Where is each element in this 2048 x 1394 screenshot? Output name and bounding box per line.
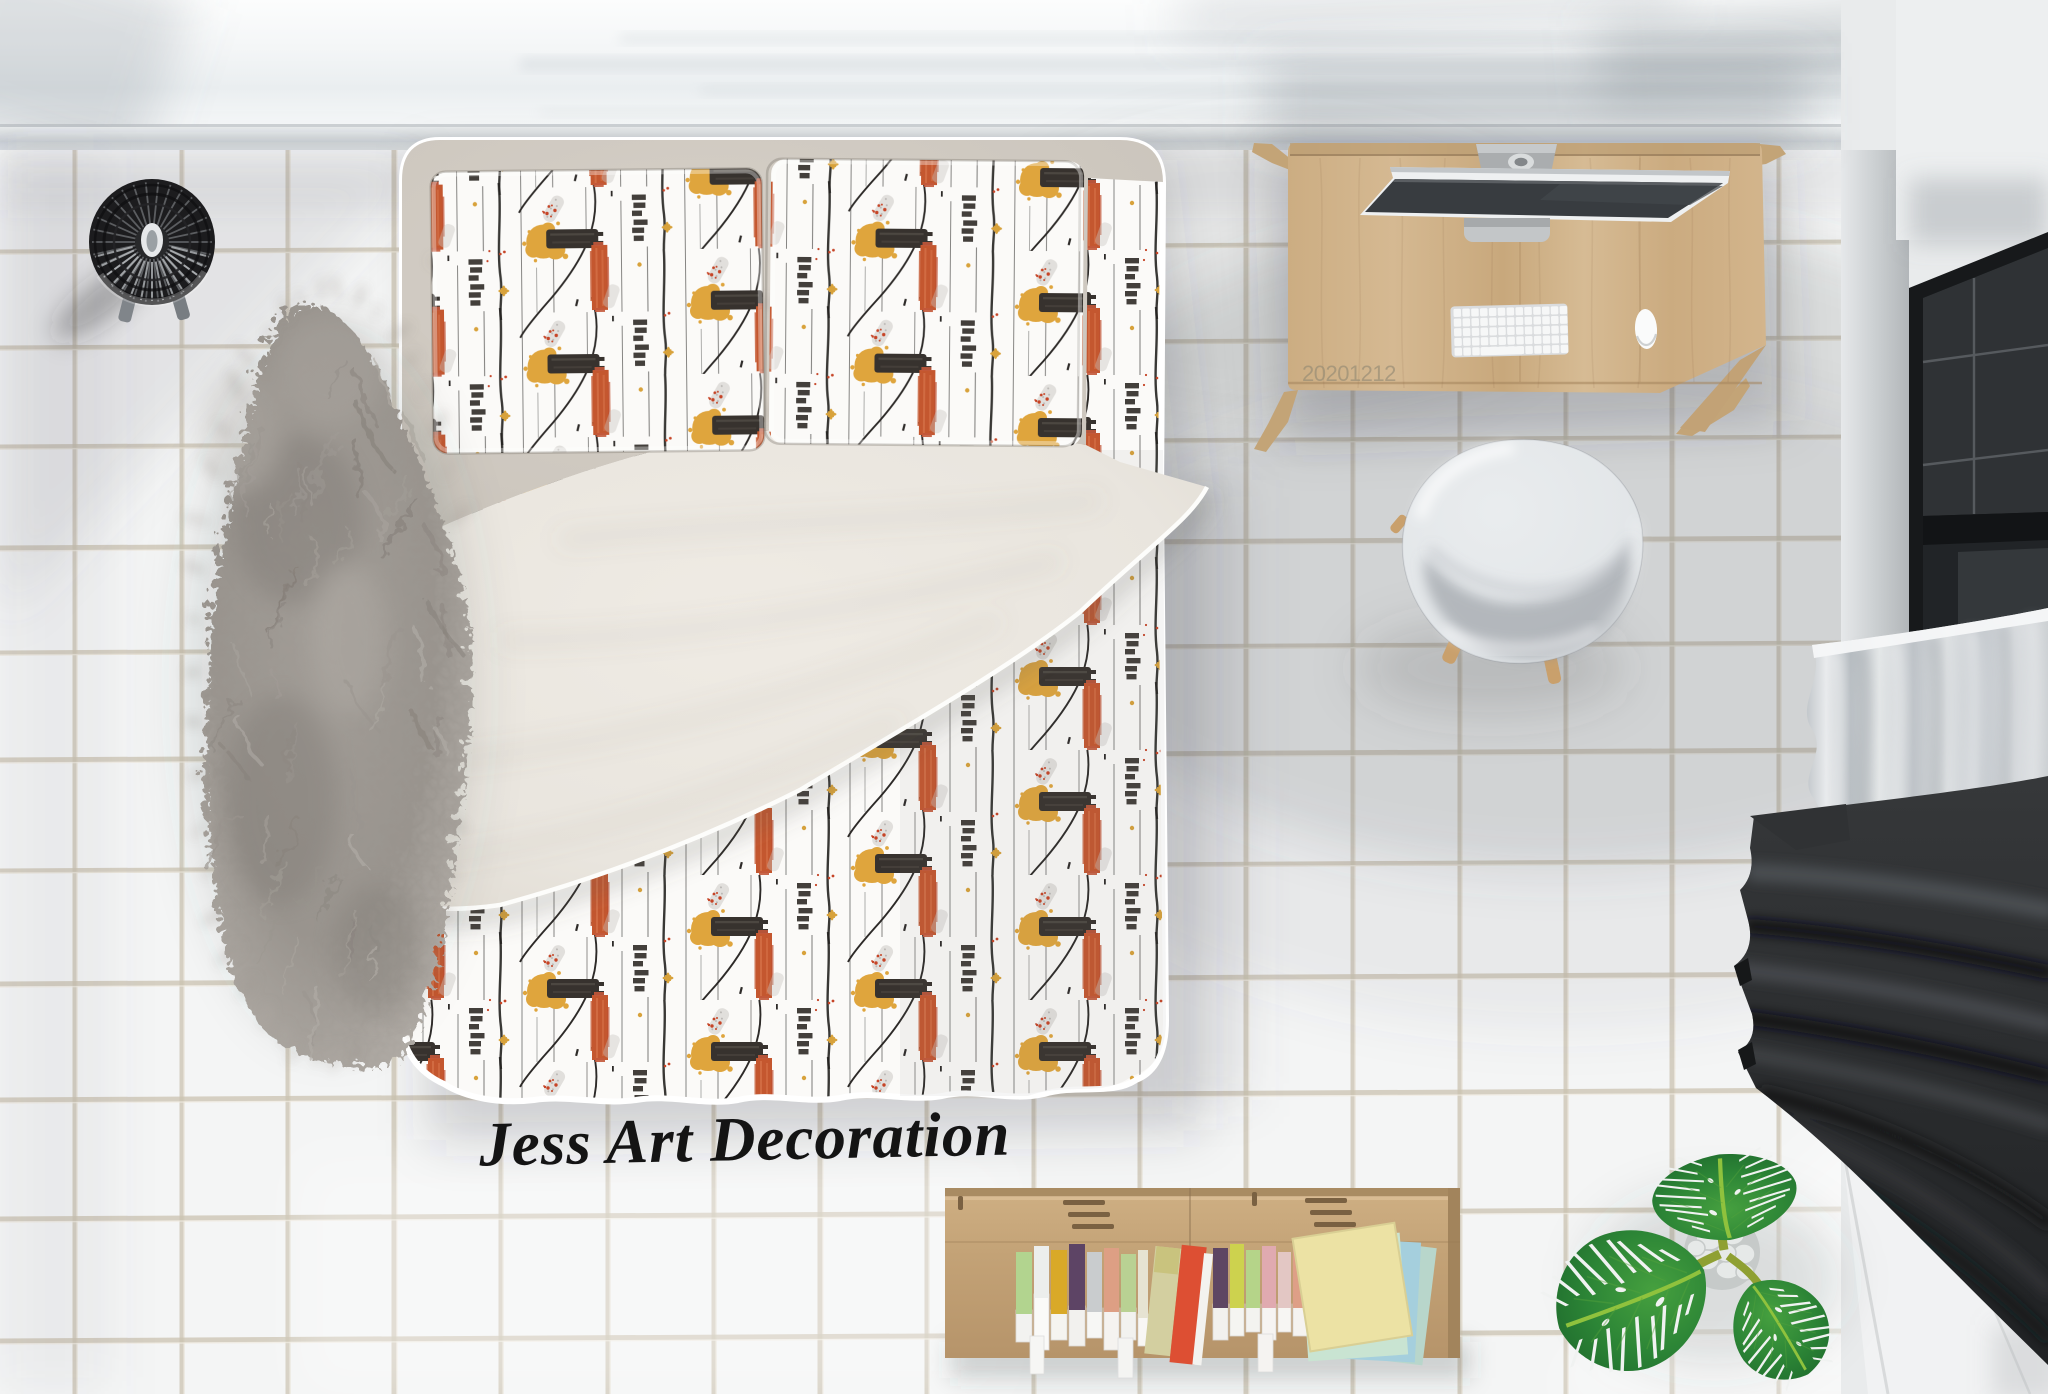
svg-text:Jess Art Decoration: Jess Art Decoration bbox=[478, 1098, 1012, 1179]
svg-text:20201212: 20201212 bbox=[1302, 361, 1396, 386]
